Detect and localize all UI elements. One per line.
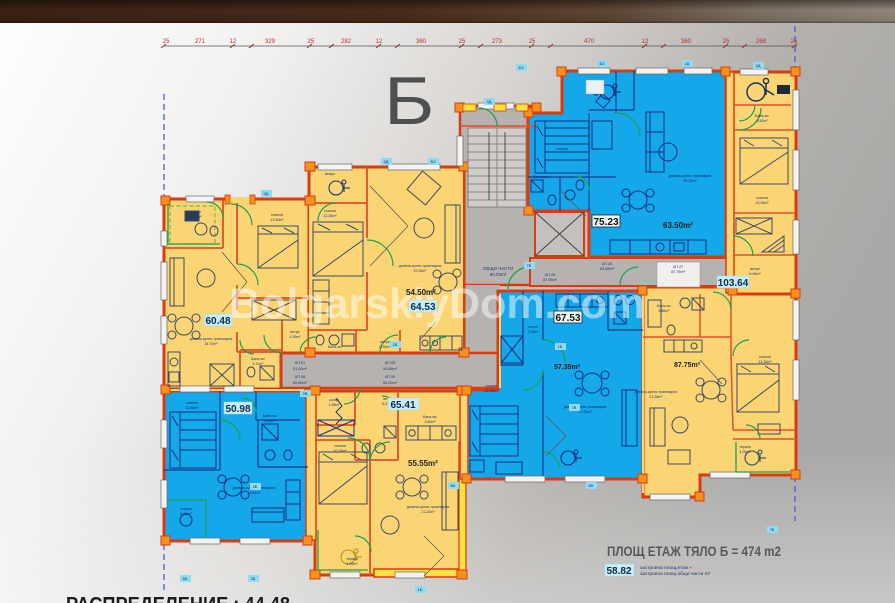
svg-text:87.75m²: 87.75m² bbox=[674, 362, 701, 369]
svg-text:мокро: мокро bbox=[325, 172, 335, 176]
svg-text:12: 12 bbox=[376, 39, 383, 45]
svg-text:4.11m²: 4.11m² bbox=[253, 362, 265, 366]
svg-text:антре: антре bbox=[290, 330, 300, 334]
svg-text:13.45m²: 13.45m² bbox=[484, 389, 498, 393]
svg-text:60.03m²: 60.03m² bbox=[490, 272, 507, 277]
svg-text:тераса: тераса bbox=[180, 507, 191, 511]
svg-text:Б: Б bbox=[384, 63, 434, 139]
svg-text:55.55m²: 55.55m² bbox=[408, 459, 438, 468]
svg-text:АП.28: АП.28 bbox=[545, 273, 556, 277]
svg-text:58.82: 58.82 bbox=[606, 566, 631, 577]
svg-text:мокро: мокро bbox=[191, 210, 201, 214]
svg-text:25: 25 bbox=[723, 39, 730, 45]
svg-text:Баня-wc: Баня-wc bbox=[657, 304, 671, 308]
svg-text:360: 360 bbox=[416, 39, 427, 45]
svg-text:54.88m²: 54.88m² bbox=[383, 367, 398, 371]
svg-text:87.76m²: 87.76m² bbox=[671, 270, 686, 274]
svg-text:склад: склад bbox=[329, 398, 340, 402]
svg-text:застроена площ общи части m²: застроена площ общи части m² bbox=[640, 571, 711, 577]
svg-text:7Б: 7Б bbox=[527, 263, 532, 268]
svg-text:51.00m²: 51.00m² bbox=[293, 367, 308, 371]
svg-text:7В: 7В bbox=[572, 405, 577, 410]
svg-text:50.98: 50.98 bbox=[225, 404, 250, 415]
svg-text:ПЛОЩ ЕТАЖ ТЯЛО Б = 474 m2: ПЛОЩ ЕТАЖ ТЯЛО Б = 474 m2 bbox=[607, 544, 781, 559]
svg-text:271: 271 bbox=[195, 39, 206, 45]
svg-text:55.00m²: 55.00m² bbox=[383, 381, 398, 385]
svg-text:БЗ: БЗ bbox=[431, 159, 437, 164]
svg-text:БК: БК bbox=[451, 483, 457, 488]
svg-text:Баня-wc: Баня-wc bbox=[251, 357, 265, 361]
svg-text:2Д: 2Д bbox=[685, 61, 690, 66]
svg-text:6Б: 6Б bbox=[183, 576, 188, 581]
svg-text:застроена площ,етаж +: застроена площ,етаж + bbox=[640, 566, 692, 571]
svg-text:22.05m²: 22.05m² bbox=[413, 269, 427, 273]
svg-text:7.39m²: 7.39m² bbox=[527, 330, 539, 334]
svg-text:26.32m²: 26.32m² bbox=[683, 179, 697, 183]
svg-text:60.86m²: 60.86m² bbox=[293, 381, 308, 385]
svg-text:282: 282 bbox=[341, 39, 352, 45]
svg-text:470: 470 bbox=[584, 39, 595, 45]
svg-text:дневна-кухня-трапезария: дневна-кухня-трапезария bbox=[399, 264, 442, 268]
svg-text:дневна-кухня-трапезария: дневна-кухня-трапезария bbox=[669, 174, 712, 178]
svg-text:Баня-wc: Баня-wc bbox=[328, 345, 342, 349]
svg-text:Баня-wc: Баня-wc bbox=[423, 415, 437, 419]
svg-text:БЗ: БЗ bbox=[600, 61, 606, 66]
svg-text:Баня-wc: Баня-wc bbox=[755, 114, 769, 118]
svg-text:2Б: 2Б bbox=[251, 576, 256, 581]
svg-text:268: 268 bbox=[756, 39, 767, 45]
svg-text:АП.01: АП.01 bbox=[295, 361, 306, 365]
svg-text:АП.05: АП.05 bbox=[385, 361, 396, 365]
svg-text:13.80m²: 13.80m² bbox=[270, 218, 284, 222]
svg-text:2Д: 2Д bbox=[264, 191, 269, 196]
svg-text:БК: БК bbox=[589, 483, 595, 488]
svg-text:тераса: тераса bbox=[739, 445, 750, 449]
svg-text:2Д: 2Д bbox=[384, 159, 389, 164]
svg-text:спалня: спалня bbox=[271, 213, 283, 217]
svg-text:64.53: 64.53 bbox=[410, 302, 435, 313]
svg-text:54.50m²: 54.50m² bbox=[406, 288, 436, 297]
svg-text:57.35m²: 57.35m² bbox=[554, 364, 581, 371]
svg-text:АП.27: АП.27 bbox=[673, 265, 684, 269]
svg-text:спалня: спалня bbox=[485, 384, 497, 388]
svg-text:1.98m²: 1.98m² bbox=[328, 403, 340, 407]
svg-text:Баня-wc: Баня-wc bbox=[263, 414, 277, 418]
svg-text:13.35m²: 13.35m² bbox=[758, 360, 772, 364]
svg-text:2Д: 2Д bbox=[756, 63, 761, 68]
svg-text:спалня: спалня bbox=[334, 444, 346, 448]
svg-text:3.80m²: 3.80m² bbox=[424, 420, 436, 424]
svg-text:6.35m²: 6.35m² bbox=[379, 345, 391, 349]
svg-text:Баня-wc: Баня-wc bbox=[533, 175, 547, 179]
svg-text:антре: антре bbox=[750, 267, 760, 271]
svg-text:дневна-кухня-трапезария: дневна-кухня-трапезария bbox=[190, 337, 233, 341]
svg-text:5.50m²: 5.50m² bbox=[756, 119, 768, 123]
svg-text:273: 273 bbox=[492, 39, 503, 45]
svg-text:25: 25 bbox=[163, 39, 170, 45]
svg-text:6.46m²: 6.46m² bbox=[749, 272, 761, 276]
svg-text:75.23: 75.23 bbox=[593, 217, 618, 228]
svg-text:63.50m²: 63.50m² bbox=[663, 221, 693, 230]
svg-text:БЗ: БЗ bbox=[519, 65, 525, 70]
svg-text:АП.26: АП.26 bbox=[602, 262, 613, 266]
svg-text:65.41: 65.41 bbox=[390, 400, 415, 411]
svg-text:спалня: спалня bbox=[324, 209, 336, 213]
svg-text:25: 25 bbox=[529, 39, 536, 45]
svg-text:12: 12 bbox=[642, 39, 649, 45]
svg-text:спалня: спалня bbox=[756, 196, 768, 200]
svg-text:АП.08: АП.08 bbox=[295, 375, 306, 379]
svg-text:тераса: тераса bbox=[346, 557, 357, 561]
svg-text:2Б: 2Б bbox=[393, 342, 398, 347]
svg-text:4Д: 4Д bbox=[487, 99, 492, 104]
svg-text:12: 12 bbox=[230, 39, 237, 45]
svg-text:2Б: 2Б bbox=[253, 484, 258, 489]
svg-text:1Б: 1Б bbox=[418, 587, 423, 592]
svg-text:21.31m²: 21.31m² bbox=[578, 410, 592, 414]
svg-text:7Б: 7Б bbox=[770, 527, 775, 532]
svg-text:4.38m²: 4.38m² bbox=[190, 215, 202, 219]
svg-text:дневна-кухня-трапезария: дневна-кухня-трапезария bbox=[407, 505, 450, 509]
svg-text:антре: антре bbox=[380, 340, 390, 344]
svg-text:4.09m²: 4.09m² bbox=[346, 562, 358, 566]
svg-text:спалня: спалня bbox=[556, 147, 568, 151]
svg-text:13.30m²: 13.30m² bbox=[755, 201, 769, 205]
svg-text:21.28m²: 21.28m² bbox=[649, 395, 663, 399]
svg-text:2.80m²: 2.80m² bbox=[264, 419, 276, 423]
svg-text:1Б: 1Б bbox=[558, 344, 563, 349]
svg-text:15.84m²: 15.84m² bbox=[247, 491, 261, 495]
svg-text:спалня: спалня bbox=[759, 355, 771, 359]
svg-text:60.48: 60.48 bbox=[205, 316, 230, 327]
svg-text:3.86m²: 3.86m² bbox=[658, 309, 670, 313]
svg-text:11.96m²: 11.96m² bbox=[186, 406, 200, 410]
svg-text:2В: 2В bbox=[303, 391, 308, 396]
svg-text:10.25m²: 10.25m² bbox=[333, 449, 347, 453]
svg-text:дневна-кухня-трапезария: дневна-кухня-трапезария bbox=[635, 390, 678, 394]
svg-text:360: 360 bbox=[681, 39, 692, 45]
svg-text:РАСПРЕДЕЛЕНИЕ : 44,48: РАСПРЕДЕЛЕНИЕ : 44,48 bbox=[66, 594, 290, 603]
svg-text:18.70m²: 18.70m² bbox=[204, 342, 218, 346]
svg-text:83.88m²: 83.88m² bbox=[600, 267, 615, 271]
svg-text:25: 25 bbox=[459, 39, 466, 45]
svg-text:13.26m²: 13.26m² bbox=[323, 214, 337, 218]
svg-text:5.85m²: 5.85m² bbox=[180, 512, 192, 516]
svg-text:АП.09: АП.09 bbox=[385, 375, 396, 379]
svg-text:103.64: 103.64 bbox=[718, 278, 749, 289]
svg-text:ОБЩИ ЧАСТИ: ОБЩИ ЧАСТИ bbox=[483, 266, 513, 271]
svg-text:67.53: 67.53 bbox=[555, 313, 580, 324]
svg-text:329: 329 bbox=[265, 39, 276, 45]
svg-text:спалня: спалня bbox=[186, 401, 198, 405]
svg-text:4.05m²: 4.05m² bbox=[739, 450, 751, 454]
svg-text:4.35m²: 4.35m² bbox=[289, 335, 301, 339]
svg-text:21.20m²: 21.20m² bbox=[421, 510, 435, 514]
